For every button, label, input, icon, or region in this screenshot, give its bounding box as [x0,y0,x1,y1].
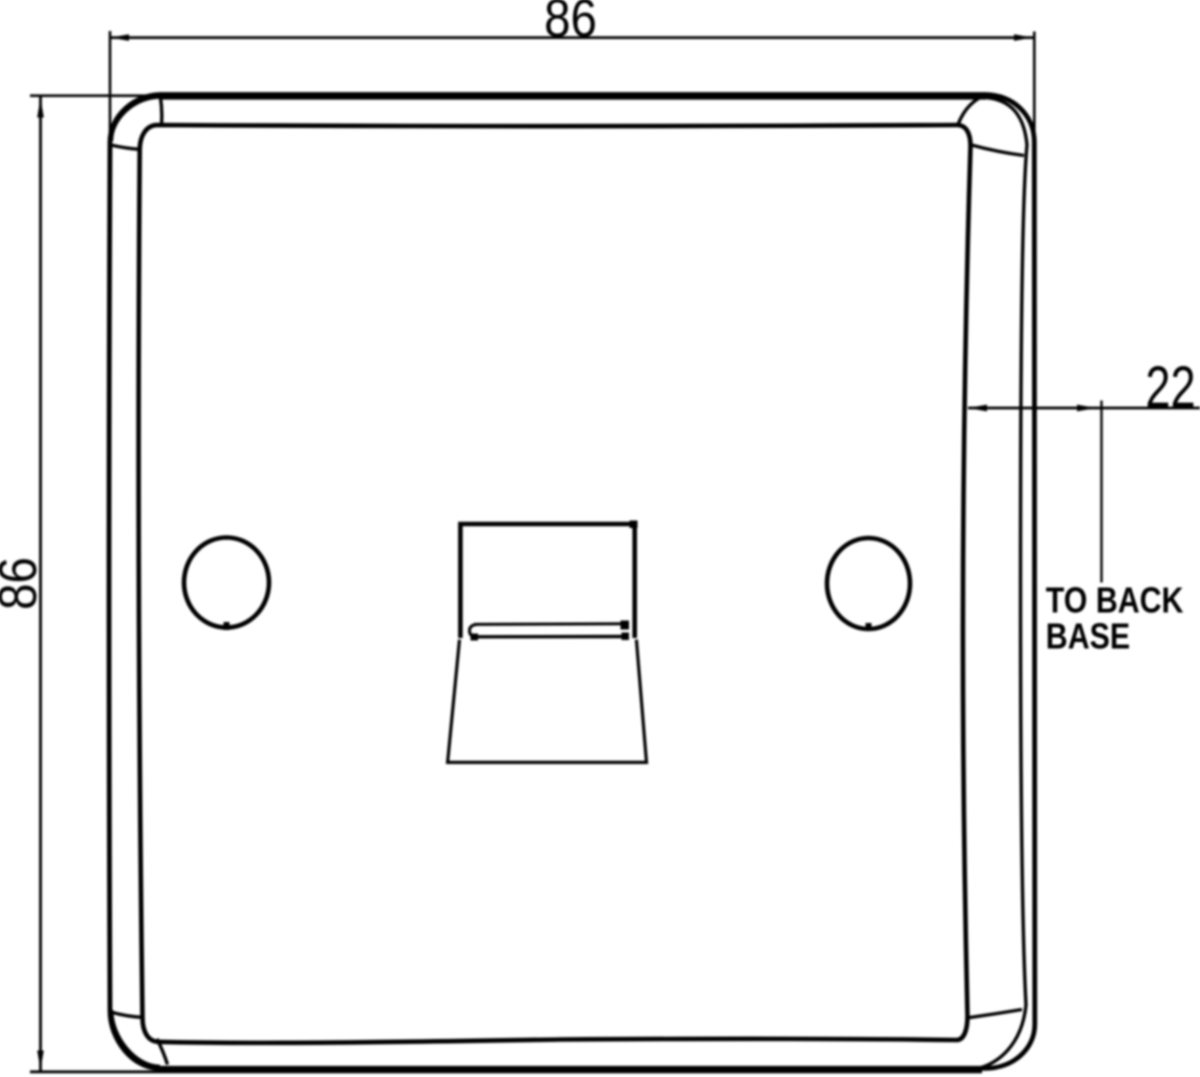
svg-text:22: 22 [1145,356,1195,421]
svg-text:86: 86 [544,0,597,48]
svg-text:TO BACK: TO BACK [1046,581,1184,621]
svg-text:86: 86 [0,557,48,610]
svg-text:BASE: BASE [1046,617,1130,657]
